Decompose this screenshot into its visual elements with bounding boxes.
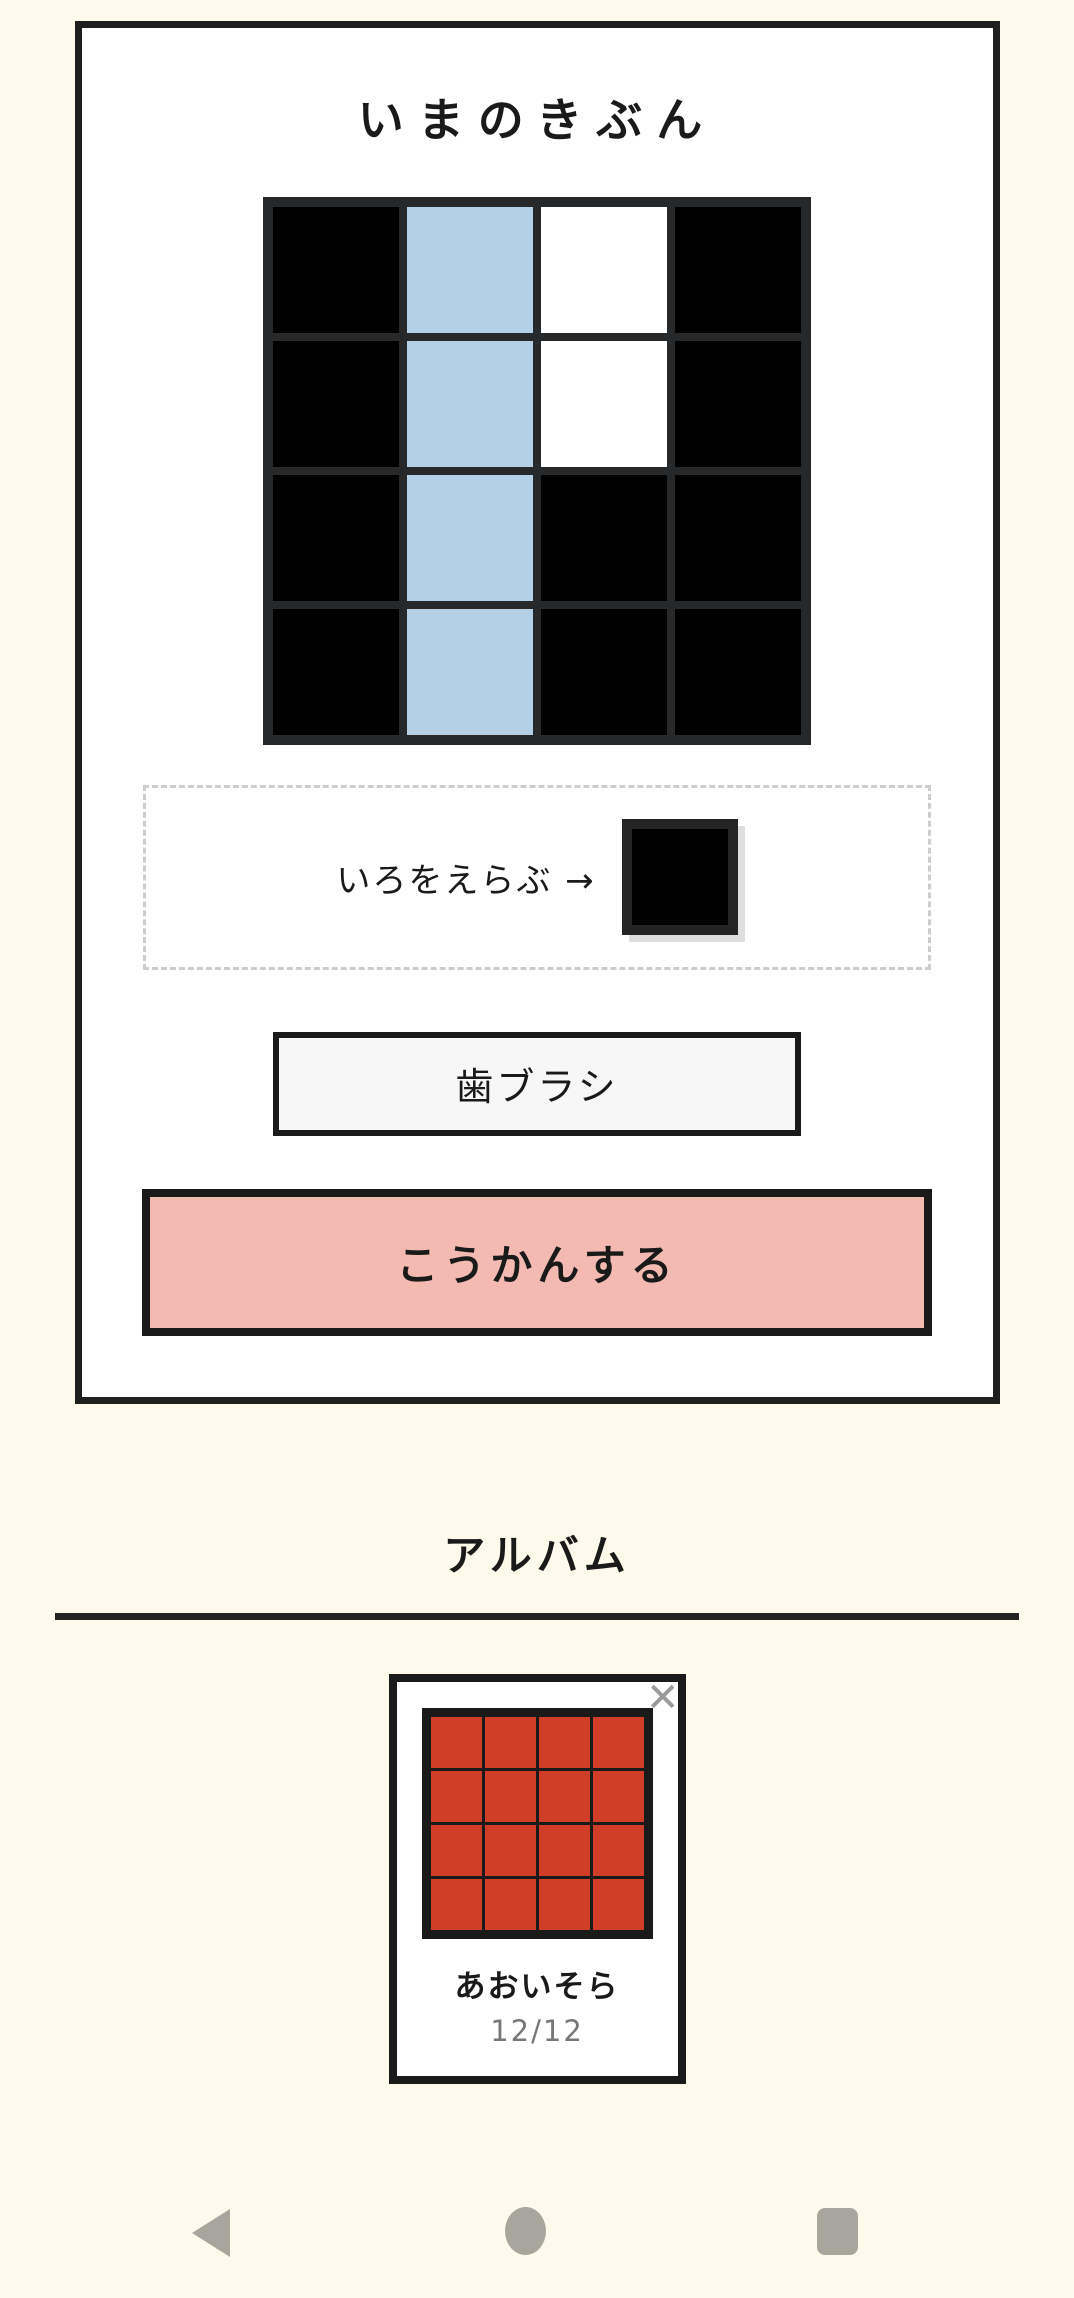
album-grid-cell <box>539 1879 590 1930</box>
album-grid-cell <box>539 1825 590 1876</box>
mood-grid-cell[interactable] <box>541 341 667 467</box>
mood-grid-cell[interactable] <box>541 207 667 333</box>
pattern-name-button[interactable]: 歯ブラシ <box>273 1032 801 1136</box>
back-icon <box>192 2209 230 2257</box>
album-grid-cell <box>485 1825 536 1876</box>
album-grid-cell <box>431 1825 482 1876</box>
album-grid-cell <box>593 1771 644 1822</box>
album-heading: アルバム <box>0 1522 1074 1583</box>
nav-back-button[interactable] <box>192 2209 230 2257</box>
mood-grid-cell[interactable] <box>541 609 667 735</box>
mood-grid-cell[interactable] <box>273 341 399 467</box>
selected-color-swatch[interactable] <box>622 819 738 935</box>
mood-grid-cell[interactable] <box>675 609 801 735</box>
home-icon <box>505 2207 546 2255</box>
album-thumbnail-grid <box>422 1708 653 1939</box>
exchange-button[interactable]: こうかんする <box>142 1189 932 1336</box>
album-grid-cell <box>593 1879 644 1930</box>
nav-home-button[interactable] <box>505 2207 546 2255</box>
mood-grid-cell[interactable] <box>675 475 801 601</box>
album-grid-cell <box>485 1717 536 1768</box>
album-grid-cell <box>431 1879 482 1930</box>
mood-grid-cell[interactable] <box>407 475 533 601</box>
mood-grid-cell[interactable] <box>675 341 801 467</box>
color-picker-box: いろをえらぶ → <box>143 785 931 970</box>
color-picker-label: いろをえらぶ → <box>336 853 595 902</box>
screen: { "screen": { "background_color": "#fdfa… <box>0 21 1074 2298</box>
panel-title: いまのきぶん <box>358 94 717 147</box>
album-grid-cell <box>485 1771 536 1822</box>
mood-grid-cell[interactable] <box>675 207 801 333</box>
mood-grid-cell[interactable] <box>273 475 399 601</box>
album-grid-cell <box>539 1717 590 1768</box>
mood-panel: いまのきぶん いろをえらぶ → 歯ブラシ こうかんする <box>75 21 1000 1404</box>
mood-grid-cell[interactable] <box>273 609 399 735</box>
album-grid-cell <box>539 1771 590 1822</box>
album-grid-cell <box>593 1717 644 1768</box>
mood-grid-cell[interactable] <box>273 207 399 333</box>
album-grid-cell <box>431 1717 482 1768</box>
mood-grid-cell[interactable] <box>407 341 533 467</box>
recents-icon <box>817 2208 858 2255</box>
mood-grid-cell[interactable] <box>541 475 667 601</box>
album-item-title: あおいそら <box>455 1961 620 2006</box>
album-grid-cell <box>431 1771 482 1822</box>
nav-recents-button[interactable] <box>817 2208 858 2255</box>
mood-grid-cell[interactable] <box>407 609 533 735</box>
album-divider <box>55 1613 1019 1620</box>
album-grid-cell <box>485 1879 536 1930</box>
mood-grid <box>263 197 811 745</box>
mood-grid-cell[interactable] <box>407 207 533 333</box>
album-item-count: 12/12 <box>490 2014 584 2048</box>
close-icon[interactable]: ✕ <box>646 1678 680 1718</box>
album-grid-cell <box>593 1825 644 1876</box>
album-card[interactable]: ✕ あおいそら 12/12 <box>389 1674 686 2084</box>
